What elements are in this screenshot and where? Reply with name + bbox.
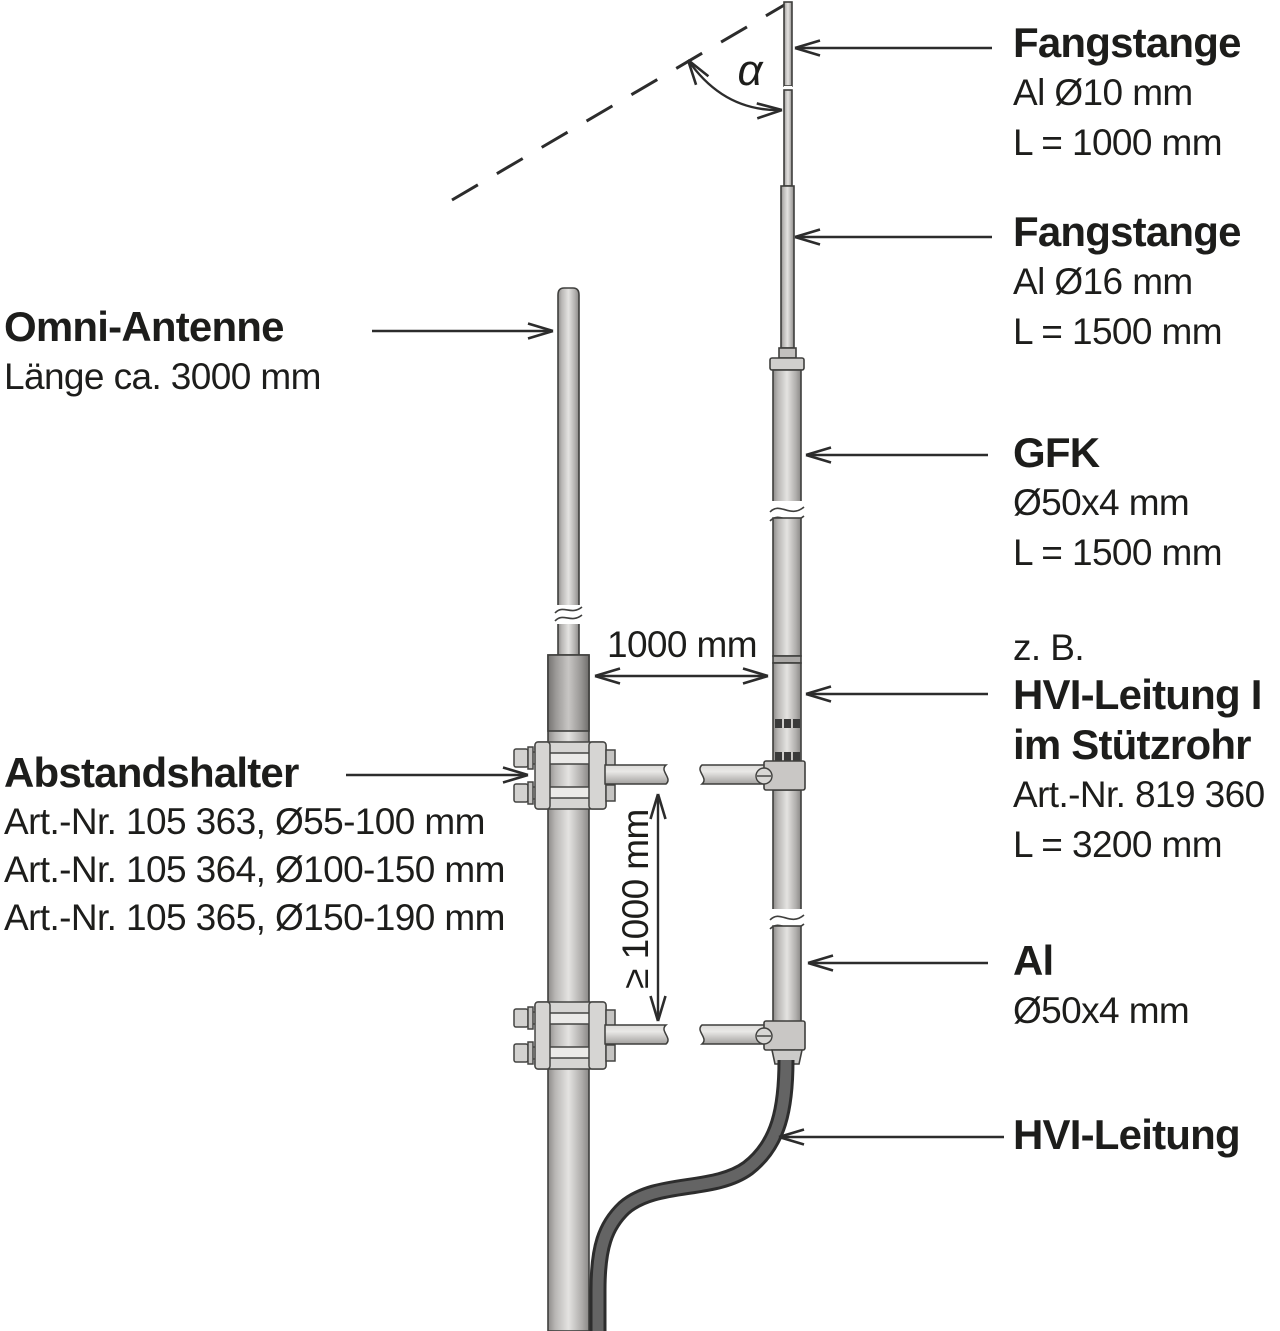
hvi-leitung-title: HVI-Leitung [1013,1110,1240,1160]
lightning-protection-diagram: α 1000 mm ≥ 1000 mm Omni-Antenne Länge c… [0,0,1280,1331]
hvi-stuetzrohr-example: z. B. [1013,626,1265,670]
hvi-leitung-label: HVI-Leitung [1013,1110,1240,1160]
clamp-plate-right [589,1002,606,1069]
hvi-stuetzrohr-title: HVI-Leitung I [1013,670,1265,720]
angle-alpha-label: α [728,46,772,96]
abstandshalter-title: Abstandshalter [4,748,505,798]
abstandshalter-art2: Art.-Nr. 105 364, Ø100-150 mm [4,846,505,894]
abstandshalter-art3: Art.-Nr. 105 365, Ø150-190 mm [4,894,505,942]
abstandshalter-label: Abstandshalter Art.-Nr. 105 363, Ø55-100… [4,748,505,942]
fangstange10-length: L = 1000 mm [1013,118,1241,168]
gfk-title: GFK [1013,428,1222,478]
gfk-top-ring [770,358,804,370]
label-arrows [346,48,1004,1137]
hvi-cable [598,1060,786,1331]
fangstange16-length: L = 1500 mm [1013,307,1241,357]
support-tube [773,663,801,763]
hvi-stuetzrohr-title2: im Stützrohr [1013,720,1265,770]
air-termination-stack [770,2,804,1022]
al-diameter: Ø50x4 mm [1013,986,1189,1036]
fangstange16-diameter: Al Ø16 mm [1013,257,1241,307]
gfk-diameter: Ø50x4 mm [1013,478,1222,528]
antenna-break-symbol [555,605,582,624]
fangstange10-label: Fangstange Al Ø10 mm L = 1000 mm [1013,18,1241,168]
fangstange-rod-10-upper [784,2,792,86]
gfk-length: L = 1500 mm [1013,528,1222,578]
omni-antenne-title: Omni-Antenne [4,302,321,352]
fangstange10-title: Fangstange [1013,18,1241,68]
fangstange16-title: Fangstange [1013,207,1241,257]
bolt-head-icon [514,749,528,767]
bolt-head-icon [514,784,528,802]
abstandshalter-art1: Art.-Nr. 105 363, Ø55-100 mm [4,798,505,846]
al-tube-lower [773,926,801,1022]
dim-vertical-label: ≥ 1000 mm [615,789,657,1009]
gfk-neck [779,348,796,358]
fangstange-rod-16 [781,186,794,348]
hvi-stuetzrohr-art: Art.-Nr. 819 360 [1013,770,1265,820]
fangstange16-label: Fangstange Al Ø16 mm L = 1500 mm [1013,207,1241,357]
al-tube-upper [773,790,801,914]
omni-antenne-label: Omni-Antenne Länge ca. 3000 mm [4,302,321,402]
antenna-tube-upper [558,288,579,610]
bolt-head-icon [514,1009,528,1027]
support-tube-joint [773,656,801,663]
gfk-tube-upper [773,370,801,506]
mast-top-collar [548,655,589,731]
clamp-plate-left [535,1002,550,1069]
fangstange10-diameter: Al Ø10 mm [1013,68,1241,118]
omni-antenne-length: Länge ca. 3000 mm [4,352,321,402]
bolt-head-icon [514,1044,528,1062]
protection-angle [452,4,786,200]
hvi-stuetzrohr-label: z. B. HVI-Leitung I im Stützrohr Art.-Nr… [1013,626,1265,870]
dim-horizontal-label: 1000 mm [592,624,772,666]
al-label: Al Ø50x4 mm [1013,936,1189,1036]
clamp-plate-right [589,742,606,809]
spacer-bar-upper [605,765,780,784]
gfk-label: GFK Ø50x4 mm L = 1500 mm [1013,428,1222,578]
hvi-stuetzrohr-length: L = 3200 mm [1013,820,1265,870]
gfk-tube-lower [773,518,801,656]
clamp-plate-left [535,742,550,809]
spacer-bar-lower [605,1025,780,1044]
al-title: Al [1013,936,1189,986]
fangstange-rod-10-lower [784,90,792,186]
